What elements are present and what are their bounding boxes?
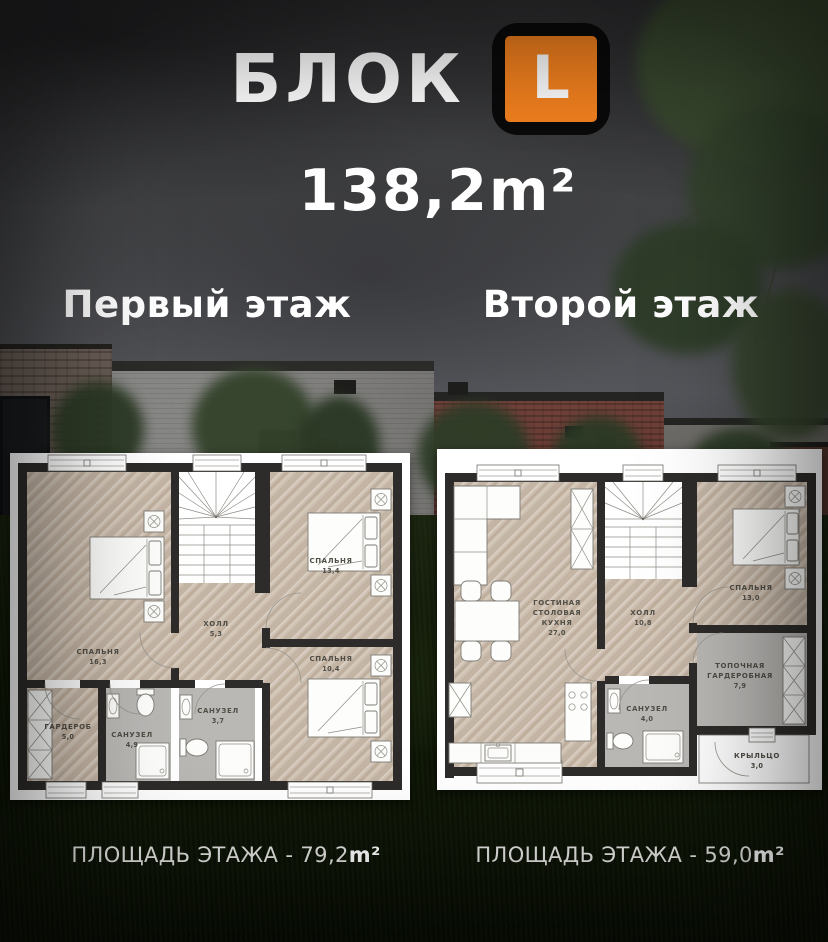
floor-titles: Первый этаж Второй этаж	[0, 283, 828, 326]
floor1-area-text: ПЛОЩАДЬ ЭТАЖА - 79,2	[71, 843, 348, 867]
floor2-area-unit: m²	[753, 843, 785, 867]
room-label: САНУЗЕЛ	[626, 705, 668, 713]
room-label: ХОЛЛ	[630, 609, 655, 617]
wardrobe-shelves-icon	[783, 637, 805, 724]
room-area: 5,3	[210, 630, 223, 638]
room-label: КРЫЛЬЦО	[734, 752, 780, 760]
bed-icon	[308, 679, 380, 737]
chimney	[448, 382, 468, 395]
wardrobe-shelves-icon	[28, 690, 52, 779]
chimney	[334, 380, 356, 394]
room-label: СТОЛОВАЯ	[533, 609, 582, 617]
floor1-title: Первый этаж	[0, 283, 414, 326]
room-area: 3,0	[751, 762, 764, 770]
floor1-area-unit: m²	[349, 843, 381, 867]
room-label: САНУЗЕЛ	[111, 731, 153, 739]
room-area: 13,4	[322, 567, 340, 575]
logo-letter: L	[532, 48, 570, 111]
room-label: ТОПОЧНАЯ	[715, 662, 765, 670]
room-area: 4,9	[126, 741, 139, 749]
floorplan-second: ГОСТИНАЯ СТОЛОВАЯ КУХНЯ 27,0 ХОЛЛ 10,8 С…	[437, 449, 822, 790]
room-label: СПАЛЬНЯ	[76, 648, 119, 656]
room-label: СПАЛЬНЯ	[309, 655, 352, 663]
block-title: БЛОК	[230, 46, 464, 113]
room-area: 10,4	[322, 665, 340, 673]
header: БЛОК L	[6, 23, 828, 135]
floor1-area-label: ПЛОЩАДЬ ЭТАЖА - 79,2m²	[0, 843, 452, 867]
total-area: 138,2m²	[24, 158, 828, 224]
room-label: СПАЛЬНЯ	[729, 584, 772, 592]
logo-orange-square: L	[505, 36, 597, 122]
room-label: ГАРДЕРОБ	[44, 723, 91, 731]
floorplan-first: СПАЛЬНЯ 16,3 ХОЛЛ 5,3 СПАЛЬНЯ 13,4 СПАЛЬ…	[10, 453, 410, 800]
room-area: 13,0	[742, 594, 760, 602]
bed-icon	[90, 537, 164, 599]
logo-badge: L	[492, 23, 610, 135]
room-area: 10,8	[634, 619, 652, 627]
room-label: САНУЗЕЛ	[197, 707, 239, 715]
room-label: ГАРДЕРОБНАЯ	[707, 672, 773, 680]
room-area: 4,0	[641, 715, 654, 723]
room-area: 5,0	[62, 733, 75, 741]
room-label: СПАЛЬНЯ	[309, 557, 352, 565]
floor2-title: Второй этаж	[414, 283, 828, 326]
room-area: 27,0	[548, 629, 566, 637]
room-area: 7,9	[734, 682, 747, 690]
room-area: 16,3	[89, 658, 107, 666]
floor2-area-text: ПЛОЩАДЬ ЭТАЖА - 59,0	[475, 843, 752, 867]
room-label: ХОЛЛ	[203, 620, 228, 628]
poster: БЛОК L 138,2m² Первый этаж Второй этаж	[0, 0, 828, 942]
room-label: КУХНЯ	[542, 619, 573, 627]
room-label: ГОСТИНАЯ	[533, 599, 581, 607]
room-area: 3,7	[212, 717, 225, 725]
floor2-area-label: ПЛОЩАДЬ ЭТАЖА - 59,0m²	[452, 843, 808, 867]
bed-icon	[733, 509, 799, 565]
wardrobe-shelves-icon	[571, 489, 593, 569]
